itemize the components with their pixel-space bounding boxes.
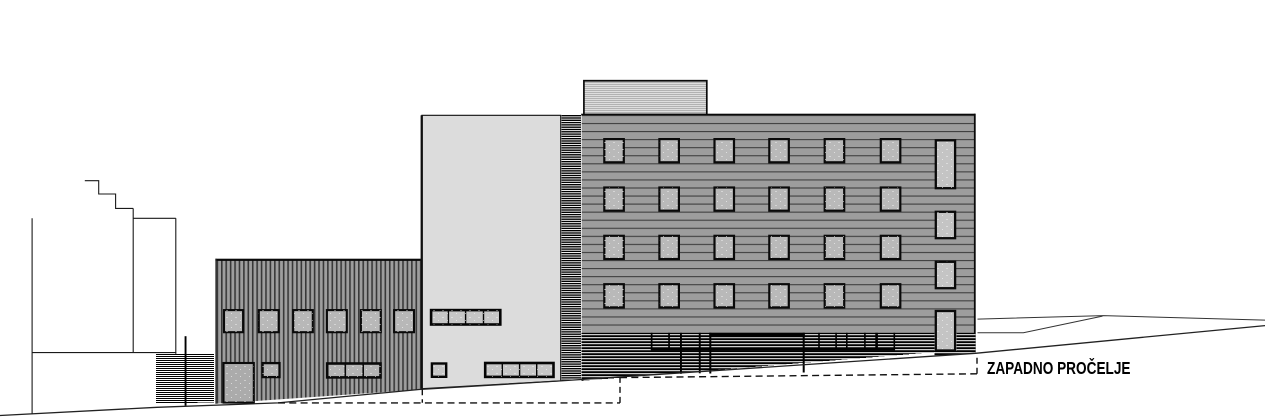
svg-text:ZAPADNO PROČELJE: ZAPADNO PROČELJE [987, 357, 1131, 378]
